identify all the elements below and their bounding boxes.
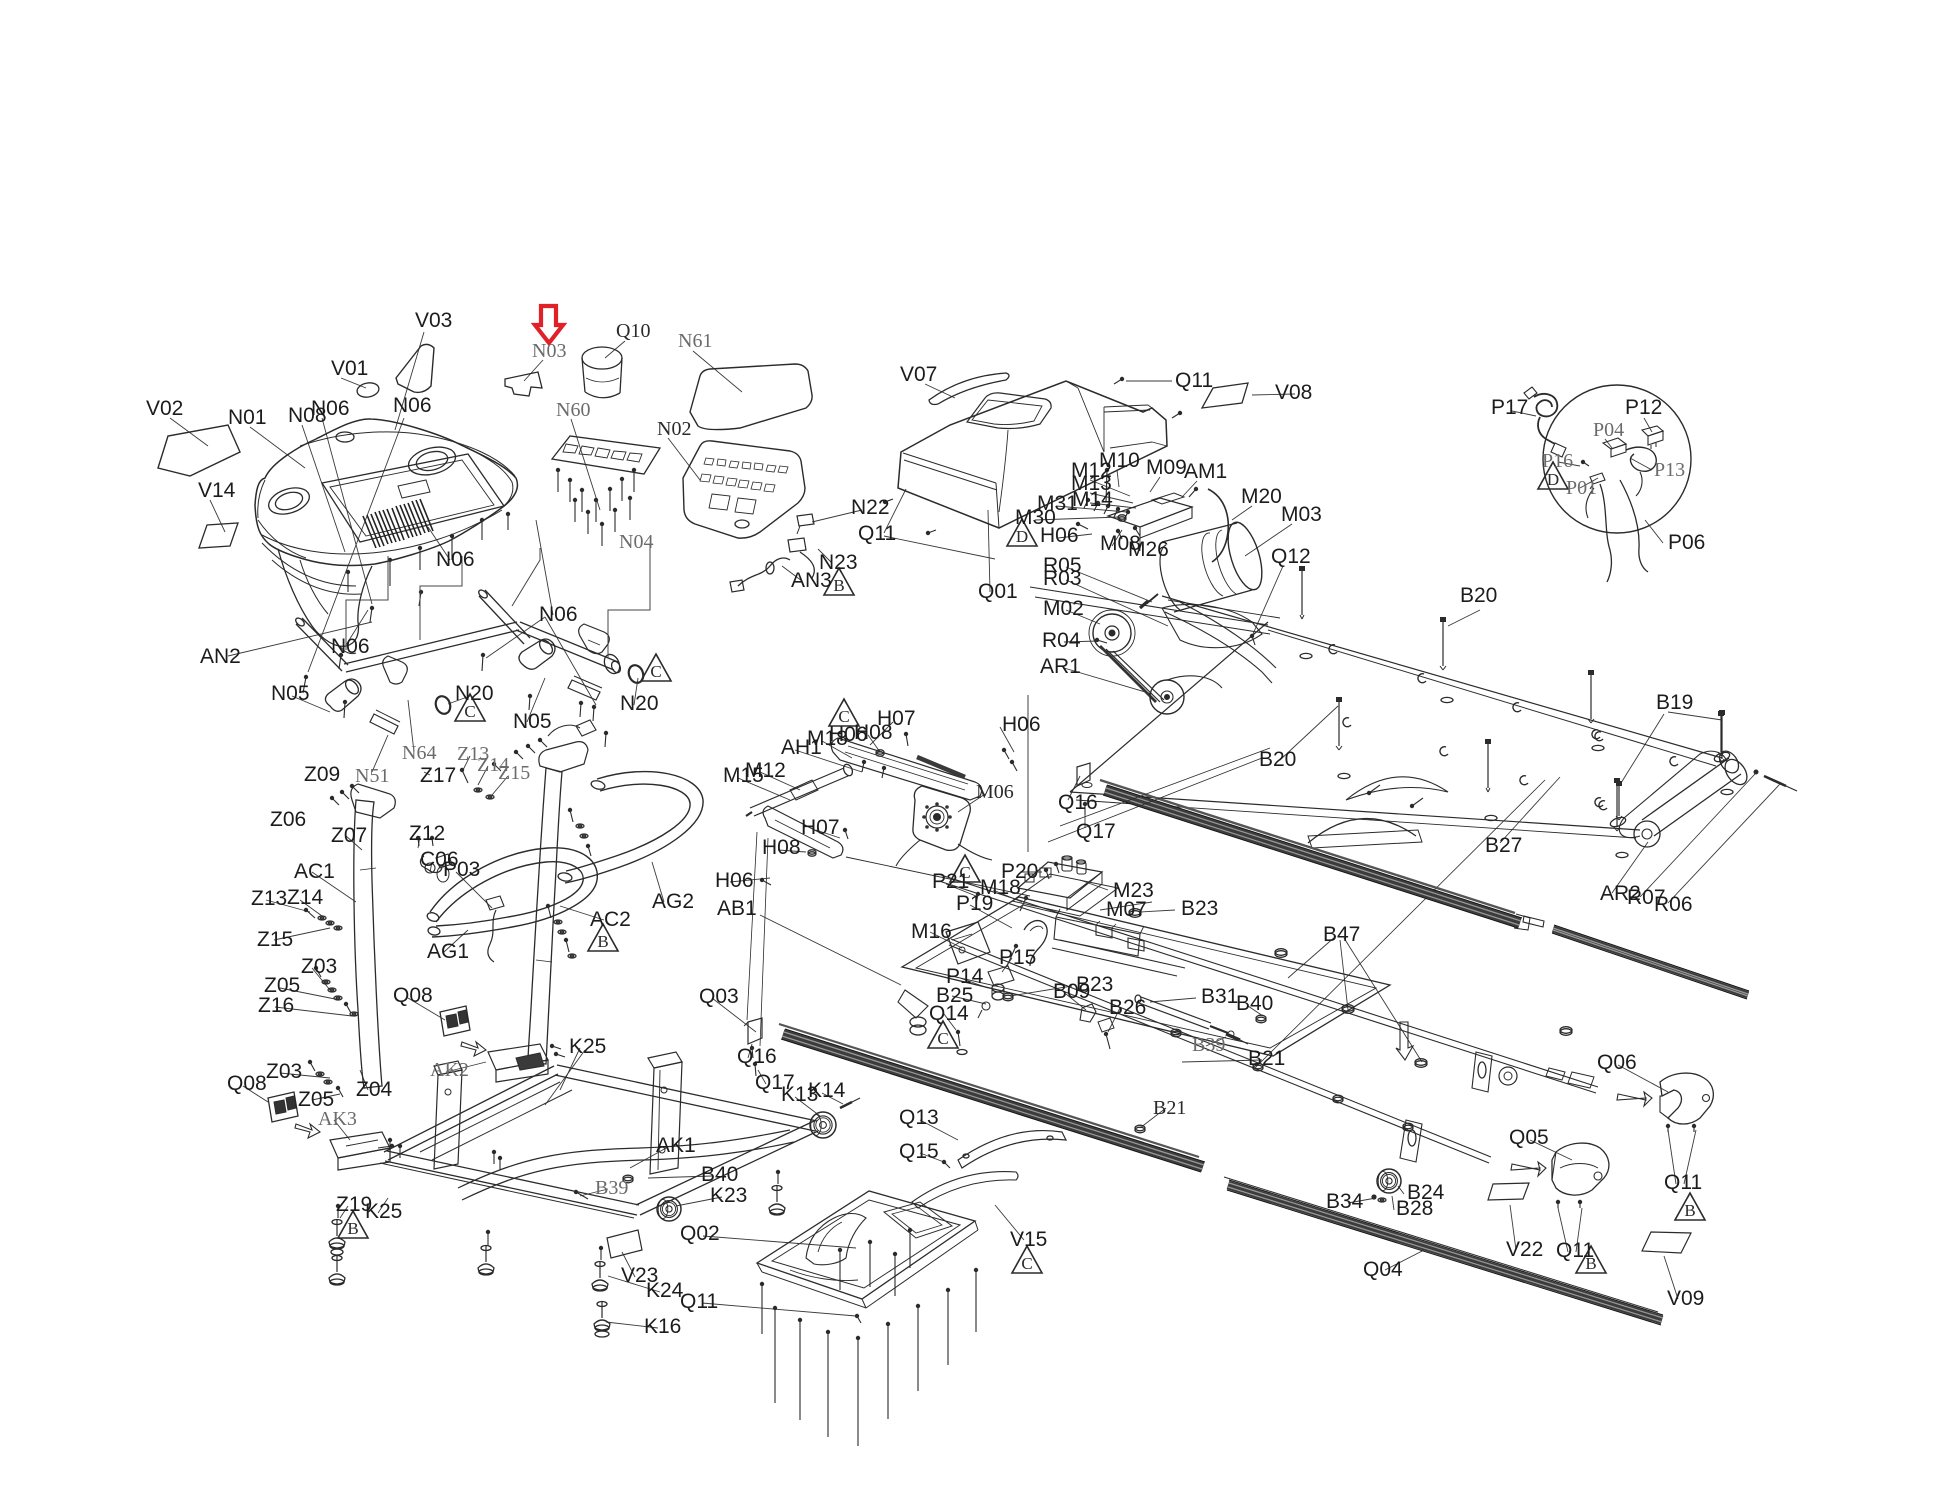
- svg-text:P03: P03: [443, 858, 480, 881]
- svg-text:N61: N61: [678, 330, 712, 352]
- svg-text:P15: P15: [999, 946, 1036, 969]
- svg-text:R03: R03: [1043, 567, 1082, 590]
- svg-text:Q03: Q03: [699, 985, 739, 1008]
- svg-text:M03: M03: [1281, 503, 1322, 526]
- svg-text:AM1: AM1: [1184, 460, 1227, 483]
- svg-text:Q04: Q04: [1363, 1258, 1403, 1281]
- svg-text:B19: B19: [1656, 691, 1693, 714]
- svg-text:V02: V02: [146, 397, 183, 420]
- svg-text:M07: M07: [1106, 898, 1147, 921]
- svg-text:AR1: AR1: [1040, 655, 1081, 678]
- svg-text:AB1: AB1: [717, 897, 757, 920]
- svg-text:N51: N51: [355, 765, 389, 787]
- svg-text:P16: P16: [1542, 450, 1573, 472]
- svg-text:Q06: Q06: [1597, 1051, 1637, 1074]
- svg-text:Q16: Q16: [1058, 791, 1098, 814]
- svg-text:Q12: Q12: [1271, 545, 1311, 568]
- svg-text:^: ^: [654, 654, 659, 665]
- svg-text:Z06: Z06: [270, 808, 306, 831]
- svg-text:AK2: AK2: [430, 1059, 469, 1081]
- svg-text:Q14: Q14: [929, 1002, 969, 1025]
- svg-text:K24: K24: [646, 1279, 684, 1302]
- svg-text:N01: N01: [228, 406, 267, 429]
- svg-text:B09: B09: [1053, 980, 1090, 1003]
- svg-text:Q05: Q05: [1509, 1126, 1549, 1149]
- svg-text:Q02: Q02: [680, 1222, 720, 1245]
- svg-text:^: ^: [963, 855, 968, 866]
- svg-text:V15: V15: [1010, 1228, 1047, 1251]
- svg-text:M02: M02: [1043, 597, 1084, 620]
- svg-text:Z03: Z03: [266, 1060, 302, 1083]
- svg-text:K25: K25: [365, 1200, 402, 1223]
- svg-text:Z07: Z07: [331, 824, 367, 847]
- svg-text:B40: B40: [1236, 992, 1273, 1015]
- svg-text:B39: B39: [595, 1177, 628, 1199]
- svg-text:H06: H06: [715, 869, 754, 892]
- svg-text:Z16: Z16: [258, 994, 294, 1017]
- svg-text:B26: B26: [1109, 996, 1146, 1019]
- svg-text:M14: M14: [1072, 488, 1113, 511]
- svg-text:Q10: Q10: [616, 320, 650, 342]
- svg-text:Q11: Q11: [1556, 1239, 1594, 1262]
- svg-text:Z12: Z12: [409, 822, 445, 845]
- svg-text:V09: V09: [1667, 1287, 1704, 1310]
- svg-text:^: ^: [842, 699, 847, 710]
- svg-text:M06: M06: [976, 781, 1014, 803]
- svg-text:Q13: Q13: [899, 1106, 939, 1129]
- svg-text:N03: N03: [532, 340, 566, 362]
- svg-text:N02: N02: [657, 418, 691, 440]
- svg-text:B20: B20: [1460, 584, 1497, 607]
- svg-text:N64: N64: [402, 742, 436, 764]
- svg-text:V08: V08: [1275, 381, 1312, 404]
- svg-text:H06: H06: [1002, 713, 1041, 736]
- svg-text:N06: N06: [393, 394, 432, 417]
- svg-text:AH1: AH1: [781, 736, 822, 759]
- svg-text:P17: P17: [1491, 396, 1528, 419]
- svg-text:Z15: Z15: [498, 762, 530, 784]
- svg-text:AC2: AC2: [590, 908, 631, 931]
- svg-text:Z14: Z14: [287, 886, 324, 909]
- svg-text:V07: V07: [900, 363, 937, 386]
- svg-text:Q01: Q01: [978, 580, 1018, 603]
- svg-text:Z09: Z09: [304, 763, 340, 786]
- svg-text:H06: H06: [829, 723, 868, 746]
- svg-text:Z15: Z15: [257, 928, 293, 951]
- svg-text:P19: P19: [956, 892, 993, 915]
- svg-text:P01: P01: [1566, 477, 1597, 499]
- svg-text:V14: V14: [198, 479, 236, 502]
- svg-text:M09: M09: [1146, 456, 1187, 479]
- svg-text:Z17: Z17: [420, 764, 456, 787]
- svg-text:B47: B47: [1323, 923, 1360, 946]
- svg-text:B40: B40: [701, 1163, 738, 1186]
- svg-text:M16: M16: [911, 920, 952, 943]
- svg-text:Z13: Z13: [251, 887, 287, 910]
- svg-text:B28: B28: [1396, 1197, 1433, 1220]
- svg-text:Q15: Q15: [899, 1140, 939, 1163]
- svg-text:Z03: Z03: [301, 955, 337, 978]
- svg-text:R04: R04: [1042, 629, 1081, 652]
- svg-text:P06: P06: [1668, 531, 1705, 554]
- svg-text:P04: P04: [1593, 419, 1624, 441]
- svg-text:B27: B27: [1485, 834, 1522, 857]
- svg-text:B34: B34: [1326, 1190, 1364, 1213]
- svg-text:AC1: AC1: [294, 860, 335, 883]
- svg-text:N23: N23: [819, 551, 858, 574]
- svg-text:M20: M20: [1241, 485, 1282, 508]
- svg-text:V01: V01: [331, 357, 368, 380]
- svg-text:N20: N20: [620, 692, 659, 715]
- svg-text:K14: K14: [808, 1079, 846, 1102]
- svg-text:K25: K25: [569, 1035, 606, 1058]
- svg-text:H07: H07: [801, 816, 840, 839]
- svg-text:B23: B23: [1181, 897, 1218, 920]
- svg-text:N22: N22: [851, 496, 890, 519]
- svg-text:N20: N20: [455, 682, 494, 705]
- svg-text:Q08: Q08: [393, 984, 433, 1007]
- svg-text:P21: P21: [932, 870, 969, 893]
- svg-text:Q11: Q11: [1664, 1171, 1702, 1194]
- svg-text:V03: V03: [415, 309, 452, 332]
- svg-text:V22: V22: [1506, 1238, 1543, 1261]
- svg-text:N04: N04: [619, 531, 653, 553]
- svg-text:AG1: AG1: [427, 940, 469, 963]
- svg-text:B31: B31: [1201, 985, 1238, 1008]
- svg-text:AN2: AN2: [200, 645, 241, 668]
- svg-text:N06: N06: [331, 635, 370, 658]
- svg-text:P13: P13: [1654, 459, 1685, 481]
- svg-text:^: ^: [1688, 1193, 1693, 1204]
- svg-text:H08: H08: [762, 836, 801, 859]
- svg-text:Q11: Q11: [858, 522, 896, 545]
- svg-text:N06: N06: [436, 548, 475, 571]
- svg-text:B39: B39: [1192, 1034, 1225, 1056]
- svg-text:AG2: AG2: [652, 890, 694, 913]
- svg-text:Q16: Q16: [737, 1045, 777, 1068]
- svg-text:Z04: Z04: [356, 1078, 393, 1101]
- svg-text:AK1: AK1: [656, 1134, 696, 1157]
- svg-text:R06: R06: [1654, 893, 1693, 916]
- svg-text:B21: B21: [1153, 1097, 1186, 1119]
- svg-text:N60: N60: [556, 399, 590, 421]
- svg-text:P12: P12: [1625, 396, 1662, 419]
- svg-text:Q11: Q11: [680, 1290, 718, 1313]
- svg-text:Q08: Q08: [227, 1072, 267, 1095]
- svg-text:N05: N05: [271, 682, 310, 705]
- svg-text:M15: M15: [723, 764, 764, 787]
- svg-text:Q11: Q11: [1175, 369, 1213, 392]
- svg-text:K23: K23: [710, 1184, 747, 1207]
- svg-text:AK3: AK3: [318, 1108, 357, 1130]
- svg-text:Q17: Q17: [1076, 820, 1116, 843]
- svg-text:N06: N06: [539, 603, 578, 626]
- svg-text:N05: N05: [513, 710, 552, 733]
- svg-text:K16: K16: [644, 1315, 681, 1338]
- svg-text:N06: N06: [311, 397, 350, 420]
- svg-text:B20: B20: [1259, 748, 1296, 771]
- svg-text:H06: H06: [1040, 524, 1079, 547]
- svg-text:M26: M26: [1128, 538, 1169, 561]
- svg-text:B21: B21: [1248, 1047, 1285, 1070]
